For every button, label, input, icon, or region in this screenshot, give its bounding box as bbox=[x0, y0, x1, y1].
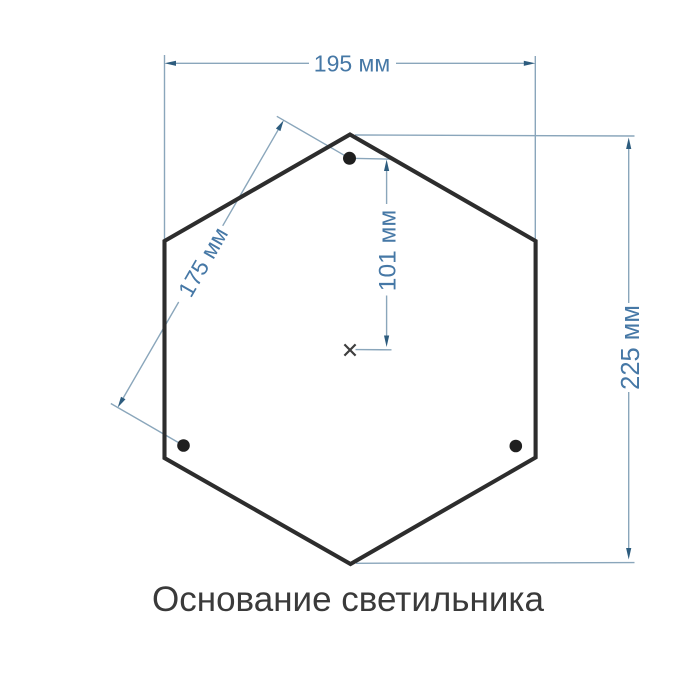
svg-text:Основание светильника: Основание светильника bbox=[152, 580, 544, 619]
svg-text:195 мм: 195 мм bbox=[314, 51, 390, 77]
svg-text:101 мм: 101 мм bbox=[374, 210, 401, 291]
svg-text:225 мм: 225 мм bbox=[617, 305, 645, 390]
